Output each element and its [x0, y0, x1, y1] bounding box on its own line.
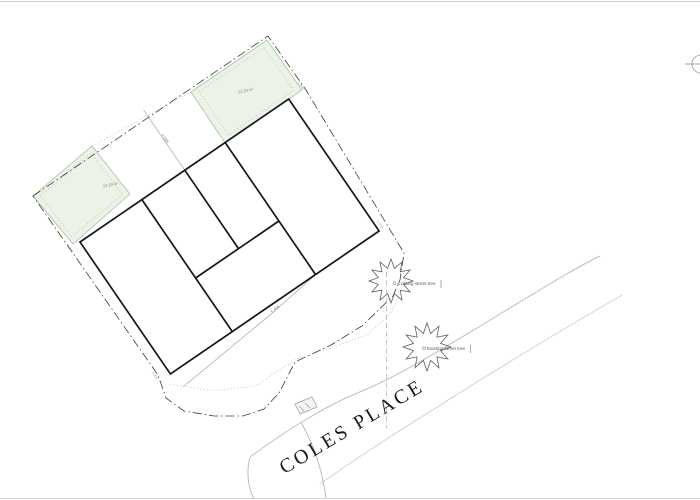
roadside-structure: [295, 397, 317, 414]
tree-2-label: Existing street tree: [427, 346, 465, 351]
dimension-tick-west: 1.000: [66, 244, 74, 253]
dimension-rear-garden: 4.588: [160, 133, 170, 145]
tree-1-label: Existing street tree: [398, 281, 436, 286]
tree-2-marker-icon: [423, 347, 426, 350]
tree-1-marker-icon: [393, 282, 396, 285]
street-trees: [369, 259, 451, 371]
road-edge-near-lower: [248, 457, 254, 499]
rear-boundary-dotted: [92, 92, 191, 146]
site-plan-canvas: 24.29 m² 24.29 m² 4.588 5.486 1.000 1.00…: [0, 0, 700, 500]
dimension-tick-south: 1.000: [151, 371, 159, 380]
north-symbol-icon: [685, 50, 700, 78]
site-plan-page: 24.29 m² 24.29 m² 4.588 5.486 1.000 1.00…: [0, 0, 700, 500]
building-block: [80, 99, 379, 374]
